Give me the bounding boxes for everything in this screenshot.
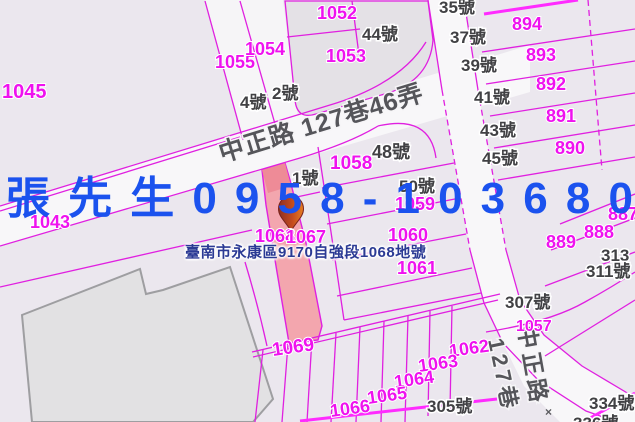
house-number-334號: 334號 — [589, 394, 634, 413]
parcel-number-1043: 1043 — [30, 212, 70, 232]
house-number-35號: 35號 — [439, 0, 475, 17]
house-number-39號: 39號 — [461, 56, 497, 75]
parcel-number-1057: 1057 — [516, 318, 552, 335]
survey-mark-layer: × — [545, 405, 552, 419]
house-number-37號: 37號 — [450, 28, 486, 47]
house-number-1號: 1號 — [292, 169, 318, 188]
house-number-44號: 44號 — [362, 25, 398, 44]
house-number-48號: 48號 — [372, 142, 410, 162]
map-canvas: 中正路 127巷46弄 127巷 中正路 1045104310551054105… — [0, 0, 635, 422]
parcel-number-892: 892 — [536, 74, 566, 94]
house-number-311號: 311號 — [586, 262, 630, 281]
parcel-number-1045: 1045 — [2, 81, 47, 103]
house-number-336號: 336號 — [573, 414, 618, 422]
parcel-number-893: 893 — [526, 45, 556, 65]
house-number-4號: 4號 — [240, 93, 266, 112]
parcel-number-1054: 1054 — [245, 39, 285, 59]
parcel-number-887: 887 — [608, 204, 635, 224]
house-number-43號: 43號 — [480, 121, 516, 140]
cadastral-map: 中正路 127巷46弄 127巷 中正路 1045104310551054105… — [0, 0, 635, 422]
house-number-41號: 41號 — [474, 88, 510, 107]
parcel-number-1052: 1052 — [317, 3, 357, 23]
survey-mark-0: × — [545, 405, 552, 419]
parcel-number-889: 889 — [546, 232, 576, 252]
house-number-307號: 307號 — [505, 293, 550, 312]
address-label: 臺南市永康區9170自強段1068地號 — [185, 241, 426, 262]
parcel-number-1059: 1059 — [395, 194, 435, 214]
parcel-number-1053: 1053 — [326, 46, 366, 66]
house-number-305號: 305號 — [427, 397, 472, 416]
parcel-number-890: 890 — [555, 138, 585, 158]
parcel-number-891: 891 — [546, 106, 576, 126]
parcel-number-894: 894 — [512, 14, 542, 34]
parcel-number-888: 888 — [584, 222, 614, 242]
parcel-number-1058: 1058 — [330, 153, 372, 174]
house-number-50號: 50號 — [399, 177, 435, 196]
house-number-45號: 45號 — [482, 149, 518, 168]
house-number-2號: 2號 — [272, 84, 298, 103]
